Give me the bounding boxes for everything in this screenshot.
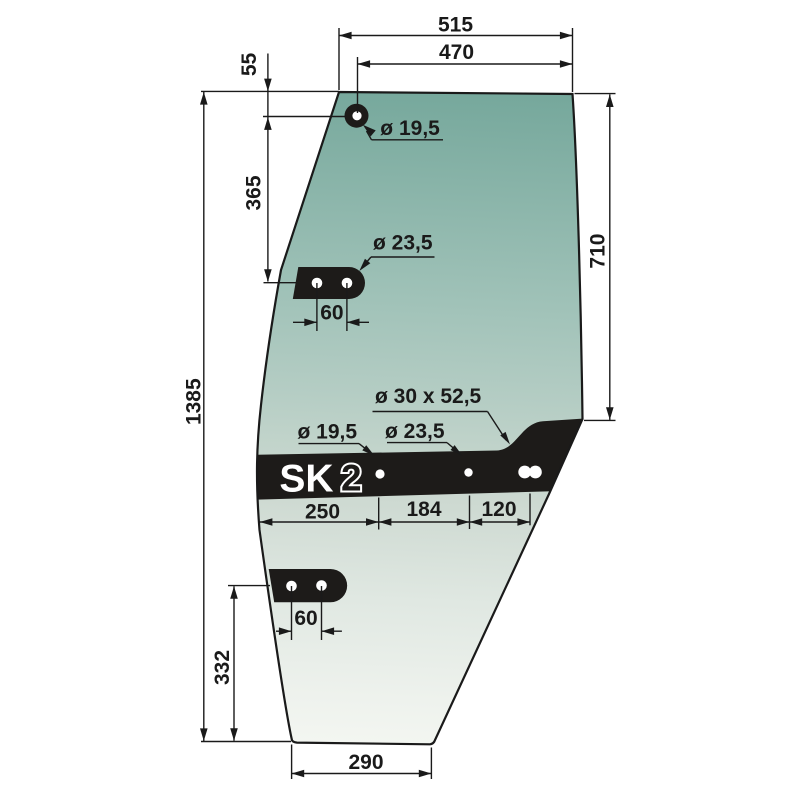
svg-text:120: 120 (481, 498, 516, 521)
svg-text:470: 470 (439, 41, 474, 64)
svg-text:ø 19,5: ø 19,5 (298, 421, 358, 444)
svg-text:60: 60 (320, 302, 343, 325)
svg-text:55: 55 (238, 53, 261, 77)
svg-text:60: 60 (294, 607, 317, 630)
svg-text:710: 710 (586, 234, 609, 269)
svg-text:184: 184 (406, 498, 441, 521)
svg-text:ø 19,5: ø 19,5 (380, 117, 440, 140)
svg-text:2: 2 (341, 458, 362, 499)
svg-text:1385: 1385 (182, 378, 205, 425)
svg-text:ø 23,5: ø 23,5 (385, 420, 445, 443)
svg-text:515: 515 (438, 14, 473, 37)
svg-text:332: 332 (211, 650, 234, 685)
svg-text:ø 30 x 52,5: ø 30 x 52,5 (375, 385, 482, 408)
svg-text:290: 290 (348, 751, 383, 774)
svg-text:250: 250 (305, 500, 340, 523)
svg-text:365: 365 (242, 175, 265, 210)
svg-text:SK: SK (279, 457, 333, 500)
svg-text:ø 23,5: ø 23,5 (373, 232, 433, 255)
